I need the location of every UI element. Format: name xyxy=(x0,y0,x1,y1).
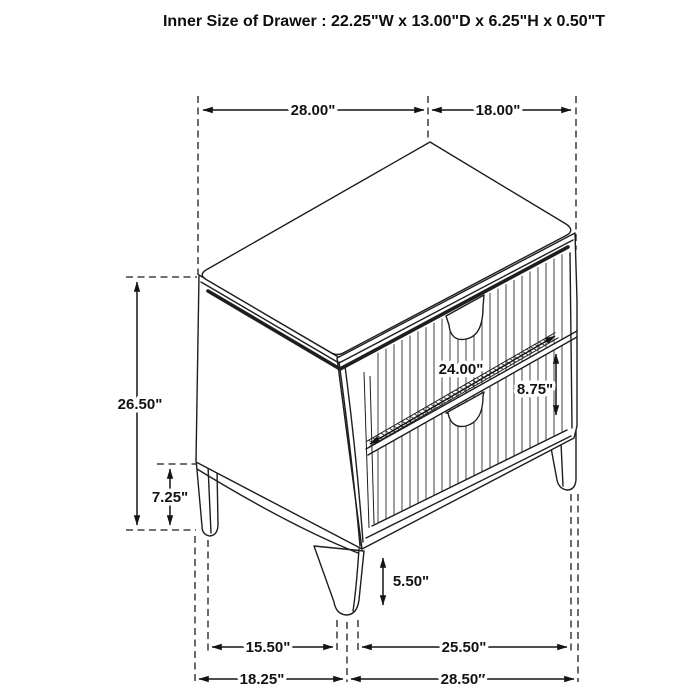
dim-top-depth: 18.00" xyxy=(432,102,571,119)
dim-base-span-front: 25.50" xyxy=(362,639,567,656)
nightstand-dimension-diagram: Inner Size of Drawer : 22.25"W x 13.00"D… xyxy=(0,0,700,700)
dim-base-depth-overall-label: 18.25" xyxy=(240,671,285,688)
dim-front-leg-height-label: 5.50" xyxy=(393,573,429,590)
dimension-diagram-canvas: Inner Size of Drawer : 22.25"W x 13.00"D… xyxy=(0,0,700,700)
page-title: Inner Size of Drawer : 22.25"W x 13.00"D… xyxy=(163,13,605,30)
dim-base-width-overall: 28.50″ xyxy=(351,671,574,688)
dim-base-span-side: 15.50" xyxy=(212,639,333,656)
dim-drawer-front-height-label: 8.75" xyxy=(517,381,553,398)
dim-base-depth-overall: 18.25" xyxy=(199,671,343,688)
dim-top-width-label: 28.00" xyxy=(291,102,336,119)
dim-base-span-side-label: 15.50" xyxy=(246,639,291,656)
dim-drawer-width-label: 24.00" xyxy=(439,361,484,378)
dim-front-leg-height: 5.50" xyxy=(383,558,429,605)
dim-left-leg-height-label: 7.25" xyxy=(152,489,188,506)
dim-left-leg-height: 7.25" xyxy=(152,469,188,525)
dim-top-width: 28.00" xyxy=(203,102,424,119)
dim-top-depth-label: 18.00" xyxy=(476,102,521,119)
nightstand-drawing xyxy=(196,142,577,615)
leg-front xyxy=(314,546,364,615)
dim-overall-height-label: 26.50" xyxy=(118,396,163,413)
dim-base-width-overall-label: 28.50″ xyxy=(441,671,486,688)
dim-base-span-front-label: 25.50" xyxy=(442,639,487,656)
